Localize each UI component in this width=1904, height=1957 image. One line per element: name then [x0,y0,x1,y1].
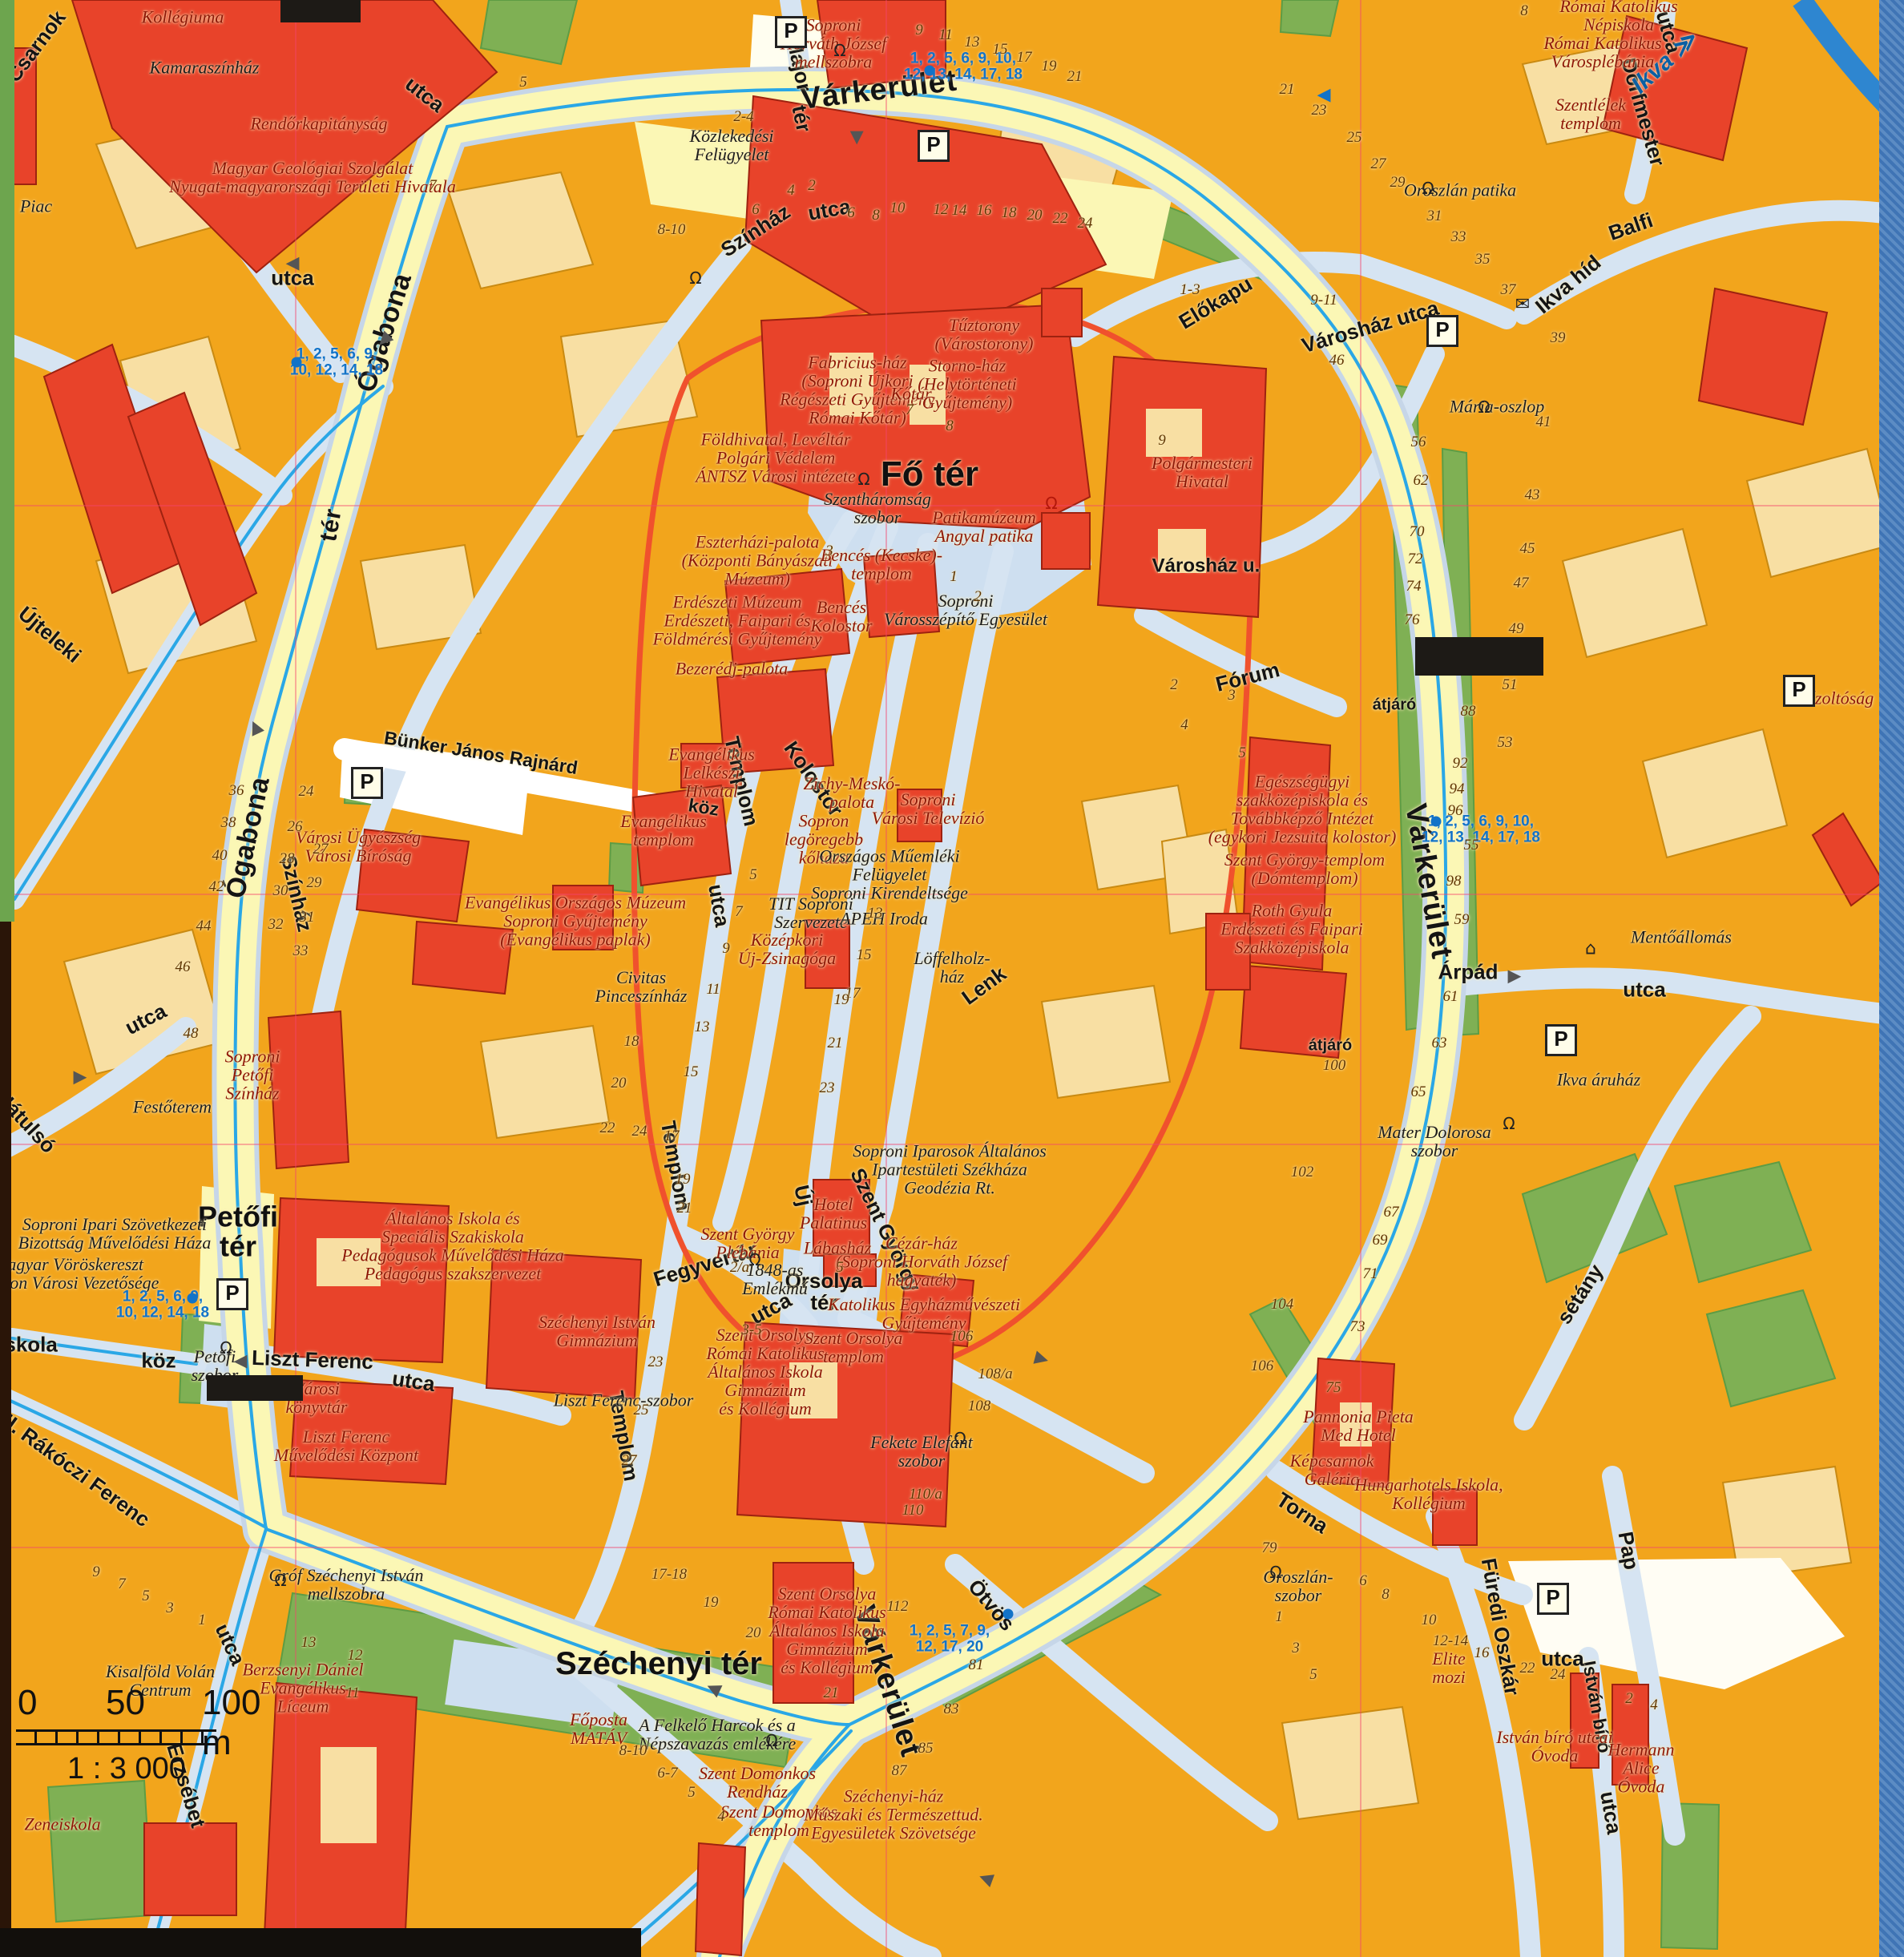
map-edge-right [1879,0,1904,1957]
city-map: VárkerületVárkerületVárkerületÓgabonaÓga… [0,0,1904,1957]
scale-bar-rule [16,1729,216,1745]
map-canvas [0,0,1904,1957]
map-edge-left-top [0,0,14,922]
map-edge-bottom [0,1928,641,1957]
scale-tick-0: 0 [18,1683,37,1723]
scale-ratio: 1 : 3 000 [67,1752,186,1786]
scale-tick-50: 50 [106,1683,145,1723]
scale-tick-100: 100 m [202,1683,268,1763]
scale-bar: 0 50 100 m 1 : 3 000 [11,1683,268,1787]
map-edge-left-bottom [0,922,11,1957]
